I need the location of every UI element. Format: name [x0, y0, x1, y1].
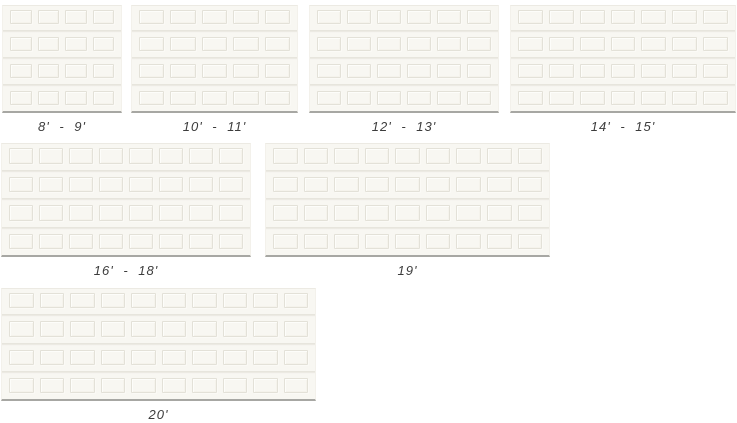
- door-panel-cell: [577, 33, 608, 57]
- door-section: [3, 87, 121, 111]
- door-panel-cell: [464, 60, 494, 84]
- raised-panel: [9, 321, 34, 336]
- raised-panel: [38, 10, 60, 24]
- door-panel-cell: [301, 144, 332, 170]
- door-panel-cell: [216, 201, 246, 227]
- door-panel-cell: [199, 33, 230, 57]
- door-size-option[interactable]: 16' - 18': [1, 143, 251, 278]
- raised-panel: [38, 37, 60, 51]
- door-panel-cell: [484, 144, 515, 170]
- door-panel-cell: [167, 60, 198, 84]
- door-panel-cell: [7, 60, 35, 84]
- door-panel-cell: [96, 230, 126, 256]
- door-panel-cell: [36, 144, 66, 170]
- door-panel-cell: [35, 87, 63, 111]
- raised-panel: [304, 148, 329, 164]
- door-panel-cell: [546, 33, 577, 57]
- door-panel-cell: [37, 374, 68, 399]
- raised-panel: [219, 177, 243, 193]
- door-panel-cell: [6, 317, 37, 342]
- door-panel-cell: [136, 6, 167, 30]
- door-panel-cell: [314, 33, 344, 57]
- door-panel-cell: [90, 6, 118, 30]
- door-panel-cell: [515, 87, 546, 111]
- raised-panel: [426, 177, 451, 193]
- raised-panel: [9, 177, 33, 193]
- raised-panel: [284, 350, 309, 365]
- door-section: [310, 33, 498, 57]
- raised-panel: [518, 91, 543, 105]
- door-panel-cell: [199, 87, 230, 111]
- door-panel-cell: [515, 230, 546, 256]
- raised-panel: [159, 205, 183, 221]
- door-panel-cell: [700, 87, 731, 111]
- raised-panel: [456, 148, 481, 164]
- door-panel-cell: [96, 201, 126, 227]
- door-panel-cell: [344, 33, 374, 57]
- raised-panel: [38, 64, 60, 78]
- raised-panel: [189, 177, 213, 193]
- raised-panel: [487, 148, 512, 164]
- raised-panel: [65, 91, 87, 105]
- raised-panel: [304, 205, 329, 221]
- door-panel-cell: [434, 60, 464, 84]
- raised-panel: [641, 91, 666, 105]
- raised-panel: [93, 91, 115, 105]
- raised-panel: [39, 177, 63, 193]
- door-panel-cell: [314, 87, 344, 111]
- door-size-label: 19': [265, 263, 550, 278]
- door-panel-cell: [608, 6, 639, 30]
- raised-panel: [39, 205, 63, 221]
- door-panel-cell: [6, 230, 36, 256]
- door-panel-cell: [423, 144, 454, 170]
- door-panel-cell: [608, 87, 639, 111]
- raised-panel: [456, 177, 481, 193]
- raised-panel: [139, 37, 164, 51]
- door-panel-cell: [189, 289, 220, 314]
- raised-panel: [99, 234, 123, 250]
- raised-panel: [9, 205, 33, 221]
- raised-panel: [223, 350, 248, 365]
- raised-panel: [202, 64, 227, 78]
- door-panel-cell: [374, 33, 404, 57]
- door-panel-cell: [577, 6, 608, 30]
- raised-panel: [69, 177, 93, 193]
- raised-panel: [347, 64, 371, 78]
- raised-panel: [233, 10, 258, 24]
- raised-panel: [131, 350, 156, 365]
- door-panel-cell: [301, 173, 332, 199]
- raised-panel: [304, 234, 329, 250]
- door-panel-cell: [262, 33, 293, 57]
- door-panel-cell: [700, 33, 731, 57]
- door-panel-cell: [90, 87, 118, 111]
- door-panel-cell: [515, 33, 546, 57]
- raised-panel: [9, 234, 33, 250]
- door-size-option[interactable]: 8' - 9': [2, 5, 122, 134]
- door-panel-cell: [392, 144, 423, 170]
- door-panel-cell: [362, 144, 393, 170]
- door-panel-cell: [362, 201, 393, 227]
- door-panel-cell: [96, 173, 126, 199]
- door-panel-cell: [37, 317, 68, 342]
- door-panel-cell: [189, 346, 220, 371]
- door-panel-cell: [434, 6, 464, 30]
- raised-panel: [395, 177, 420, 193]
- door-panel-cell: [6, 374, 37, 399]
- raised-panel: [70, 321, 95, 336]
- raised-panel: [40, 350, 65, 365]
- door-panel-cell: [700, 60, 731, 84]
- raised-panel: [129, 177, 153, 193]
- door-panel-cell: [638, 87, 669, 111]
- door-panel-cell: [189, 374, 220, 399]
- door-panel-cell: [159, 346, 190, 371]
- door-panel-cell: [484, 201, 515, 227]
- raised-panel: [487, 177, 512, 193]
- garage-door-graphic[interactable]: [309, 5, 499, 113]
- garage-door-graphic[interactable]: [1, 143, 251, 257]
- door-panel-cell: [66, 201, 96, 227]
- raised-panel: [192, 378, 217, 393]
- door-panel-cell: [669, 87, 700, 111]
- door-section: [132, 6, 297, 30]
- raised-panel: [426, 148, 451, 164]
- door-section: [2, 201, 250, 227]
- door-panel-cell: [136, 87, 167, 111]
- door-panel-cell: [281, 317, 312, 342]
- door-panel-cell: [362, 230, 393, 256]
- raised-panel: [10, 37, 32, 51]
- raised-panel: [377, 37, 401, 51]
- door-section: [132, 33, 297, 57]
- raised-panel: [101, 293, 126, 308]
- door-panel-cell: [159, 374, 190, 399]
- raised-panel: [253, 293, 278, 308]
- raised-panel: [39, 148, 63, 164]
- door-panel-cell: [98, 346, 129, 371]
- door-panel-cell: [331, 201, 362, 227]
- door-section: [2, 289, 315, 314]
- door-panel-cell: [220, 346, 251, 371]
- raised-panel: [284, 293, 309, 308]
- raised-panel: [703, 10, 728, 24]
- raised-panel: [347, 37, 371, 51]
- raised-panel: [131, 293, 156, 308]
- raised-panel: [347, 10, 371, 24]
- door-panel-cell: [167, 33, 198, 57]
- raised-panel: [273, 177, 298, 193]
- door-panel-cell: [98, 317, 129, 342]
- raised-panel: [518, 148, 543, 164]
- door-panel-cell: [515, 60, 546, 84]
- raised-panel: [170, 64, 195, 78]
- door-panel-cell: [423, 173, 454, 199]
- door-panel-cell: [331, 144, 362, 170]
- garage-door-graphic[interactable]: [265, 143, 550, 257]
- door-panel-cell: [90, 33, 118, 57]
- door-panel-cell: [186, 201, 216, 227]
- raised-panel: [580, 37, 605, 51]
- raised-panel: [641, 10, 666, 24]
- garage-door-graphic[interactable]: [1, 288, 316, 401]
- raised-panel: [219, 234, 243, 250]
- door-panel-cell: [66, 230, 96, 256]
- door-panel-cell: [638, 33, 669, 57]
- raised-panel: [265, 91, 290, 105]
- raised-panel: [253, 321, 278, 336]
- raised-panel: [10, 64, 32, 78]
- door-panel-cell: [301, 201, 332, 227]
- raised-panel: [347, 91, 371, 105]
- raised-panel: [365, 205, 390, 221]
- door-panel-cell: [281, 346, 312, 371]
- door-panel-cell: [230, 33, 261, 57]
- door-panel-cell: [453, 230, 484, 256]
- door-panel-cell: [392, 230, 423, 256]
- door-section: [511, 60, 735, 84]
- door-panel-cell: [126, 173, 156, 199]
- raised-panel: [9, 293, 34, 308]
- raised-panel: [549, 10, 574, 24]
- raised-panel: [99, 177, 123, 193]
- raised-panel: [39, 234, 63, 250]
- door-panel-cell: [362, 173, 393, 199]
- raised-panel: [131, 321, 156, 336]
- door-panel-cell: [270, 144, 301, 170]
- raised-panel: [9, 148, 33, 164]
- raised-panel: [40, 293, 65, 308]
- raised-panel: [437, 91, 461, 105]
- raised-panel: [426, 234, 451, 250]
- raised-panel: [202, 37, 227, 51]
- raised-panel: [192, 293, 217, 308]
- door-panel-cell: [62, 60, 90, 84]
- raised-panel: [189, 234, 213, 250]
- raised-panel: [139, 10, 164, 24]
- door-panel-cell: [608, 33, 639, 57]
- door-panel-cell: [7, 6, 35, 30]
- door-panel-cell: [638, 6, 669, 30]
- raised-panel: [304, 177, 329, 193]
- raised-panel: [10, 10, 32, 24]
- door-section: [2, 144, 250, 170]
- door-panel-cell: [156, 230, 186, 256]
- raised-panel: [377, 91, 401, 105]
- door-panel-cell: [156, 173, 186, 199]
- raised-panel: [223, 321, 248, 336]
- door-panel-cell: [6, 173, 36, 199]
- door-panel-cell: [344, 87, 374, 111]
- door-panel-cell: [577, 87, 608, 111]
- raised-panel: [377, 64, 401, 78]
- garage-door-graphic[interactable]: [2, 5, 122, 113]
- garage-door-graphic[interactable]: [510, 5, 736, 113]
- door-panel-cell: [669, 60, 700, 84]
- raised-panel: [129, 234, 153, 250]
- door-panel-cell: [199, 6, 230, 30]
- door-size-label: 14' - 15': [510, 119, 736, 134]
- door-panel-cell: [404, 60, 434, 84]
- door-panel-cell: [66, 173, 96, 199]
- door-size-label: 10' - 11': [131, 119, 298, 134]
- door-panel-cell: [156, 144, 186, 170]
- door-panel-cell: [216, 173, 246, 199]
- raised-panel: [139, 91, 164, 105]
- raised-panel: [170, 10, 195, 24]
- raised-panel: [703, 37, 728, 51]
- raised-panel: [93, 64, 115, 78]
- door-panel-cell: [167, 6, 198, 30]
- door-panel-cell: [453, 201, 484, 227]
- raised-panel: [672, 10, 697, 24]
- door-section: [2, 346, 315, 371]
- raised-panel: [549, 91, 574, 105]
- raised-panel: [38, 91, 60, 105]
- door-size-option[interactable]: 14' - 15': [510, 5, 736, 134]
- raised-panel: [580, 64, 605, 78]
- raised-panel: [159, 234, 183, 250]
- raised-panel: [395, 148, 420, 164]
- door-panel-cell: [98, 374, 129, 399]
- door-panel-cell: [314, 6, 344, 30]
- door-panel-cell: [67, 346, 98, 371]
- door-panel-cell: [67, 289, 98, 314]
- raised-panel: [9, 350, 34, 365]
- raised-panel: [253, 378, 278, 393]
- door-panel-cell: [546, 6, 577, 30]
- door-panel-cell: [423, 201, 454, 227]
- raised-panel: [334, 234, 359, 250]
- door-panel-cell: [464, 33, 494, 57]
- door-size-label: 8' - 9': [2, 119, 122, 134]
- door-panel-cell: [331, 173, 362, 199]
- door-section: [266, 144, 549, 170]
- raised-panel: [317, 91, 341, 105]
- door-panel-cell: [423, 230, 454, 256]
- door-panel-cell: [669, 6, 700, 30]
- raised-panel: [549, 64, 574, 78]
- door-panel-cell: [404, 6, 434, 30]
- door-panel-cell: [199, 60, 230, 84]
- door-section: [2, 317, 315, 342]
- door-size-option[interactable]: 12' - 13': [309, 5, 499, 134]
- raised-panel: [518, 205, 543, 221]
- raised-panel: [129, 205, 153, 221]
- door-panel-cell: [392, 173, 423, 199]
- door-panel-cell: [35, 33, 63, 57]
- door-panel-cell: [90, 60, 118, 84]
- door-panel-cell: [189, 317, 220, 342]
- raised-panel: [703, 91, 728, 105]
- door-section: [132, 87, 297, 111]
- raised-panel: [265, 10, 290, 24]
- door-panel-cell: [220, 317, 251, 342]
- raised-panel: [219, 205, 243, 221]
- raised-panel: [129, 148, 153, 164]
- door-panel-cell: [262, 60, 293, 84]
- raised-panel: [65, 10, 87, 24]
- door-panel-cell: [464, 6, 494, 30]
- raised-panel: [467, 37, 491, 51]
- raised-panel: [99, 205, 123, 221]
- door-panel-cell: [36, 173, 66, 199]
- raised-panel: [518, 37, 543, 51]
- door-panel-cell: [270, 230, 301, 256]
- raised-panel: [159, 148, 183, 164]
- door-panel-cell: [250, 289, 281, 314]
- raised-panel: [611, 91, 636, 105]
- raised-panel: [437, 37, 461, 51]
- raised-panel: [233, 64, 258, 78]
- door-panel-cell: [37, 346, 68, 371]
- door-panel-cell: [220, 374, 251, 399]
- raised-panel: [580, 10, 605, 24]
- door-section: [511, 6, 735, 30]
- door-panel-cell: [66, 144, 96, 170]
- raised-panel: [192, 321, 217, 336]
- raised-panel: [162, 321, 187, 336]
- raised-panel: [131, 378, 156, 393]
- door-panel-cell: [186, 144, 216, 170]
- raised-panel: [99, 148, 123, 164]
- raised-panel: [70, 293, 95, 308]
- door-panel-cell: [638, 60, 669, 84]
- door-size-label: 20': [1, 407, 316, 422]
- raised-panel: [219, 148, 243, 164]
- raised-panel: [395, 205, 420, 221]
- raised-panel: [377, 10, 401, 24]
- raised-panel: [10, 91, 32, 105]
- door-panel-cell: [216, 144, 246, 170]
- door-panel-cell: [515, 144, 546, 170]
- door-size-option[interactable]: 20': [1, 288, 316, 422]
- door-panel-cell: [434, 87, 464, 111]
- raised-panel: [549, 37, 574, 51]
- door-panel-cell: [186, 230, 216, 256]
- raised-panel: [265, 64, 290, 78]
- raised-panel: [284, 321, 309, 336]
- raised-panel: [703, 64, 728, 78]
- door-size-option[interactable]: 10' - 11': [131, 5, 298, 134]
- door-panel-cell: [404, 87, 434, 111]
- raised-panel: [365, 234, 390, 250]
- raised-panel: [467, 10, 491, 24]
- raised-panel: [518, 177, 543, 193]
- raised-panel: [273, 205, 298, 221]
- raised-panel: [407, 37, 431, 51]
- door-panel-cell: [700, 6, 731, 30]
- raised-panel: [40, 378, 65, 393]
- door-size-option[interactable]: 19': [265, 143, 550, 278]
- garage-door-graphic[interactable]: [131, 5, 298, 113]
- door-panel-cell: [314, 60, 344, 84]
- door-panel-cell: [37, 289, 68, 314]
- raised-panel: [334, 148, 359, 164]
- door-panel-cell: [126, 230, 156, 256]
- door-panel-cell: [281, 289, 312, 314]
- door-panel-cell: [128, 346, 159, 371]
- door-panel-cell: [159, 317, 190, 342]
- garage-door-width-options: 8' - 9'10' - 11'12' - 13'14' - 15'16' - …: [0, 0, 737, 423]
- raised-panel: [672, 37, 697, 51]
- raised-panel: [437, 10, 461, 24]
- door-panel-cell: [270, 173, 301, 199]
- raised-panel: [162, 350, 187, 365]
- door-panel-cell: [126, 144, 156, 170]
- door-panel-cell: [98, 289, 129, 314]
